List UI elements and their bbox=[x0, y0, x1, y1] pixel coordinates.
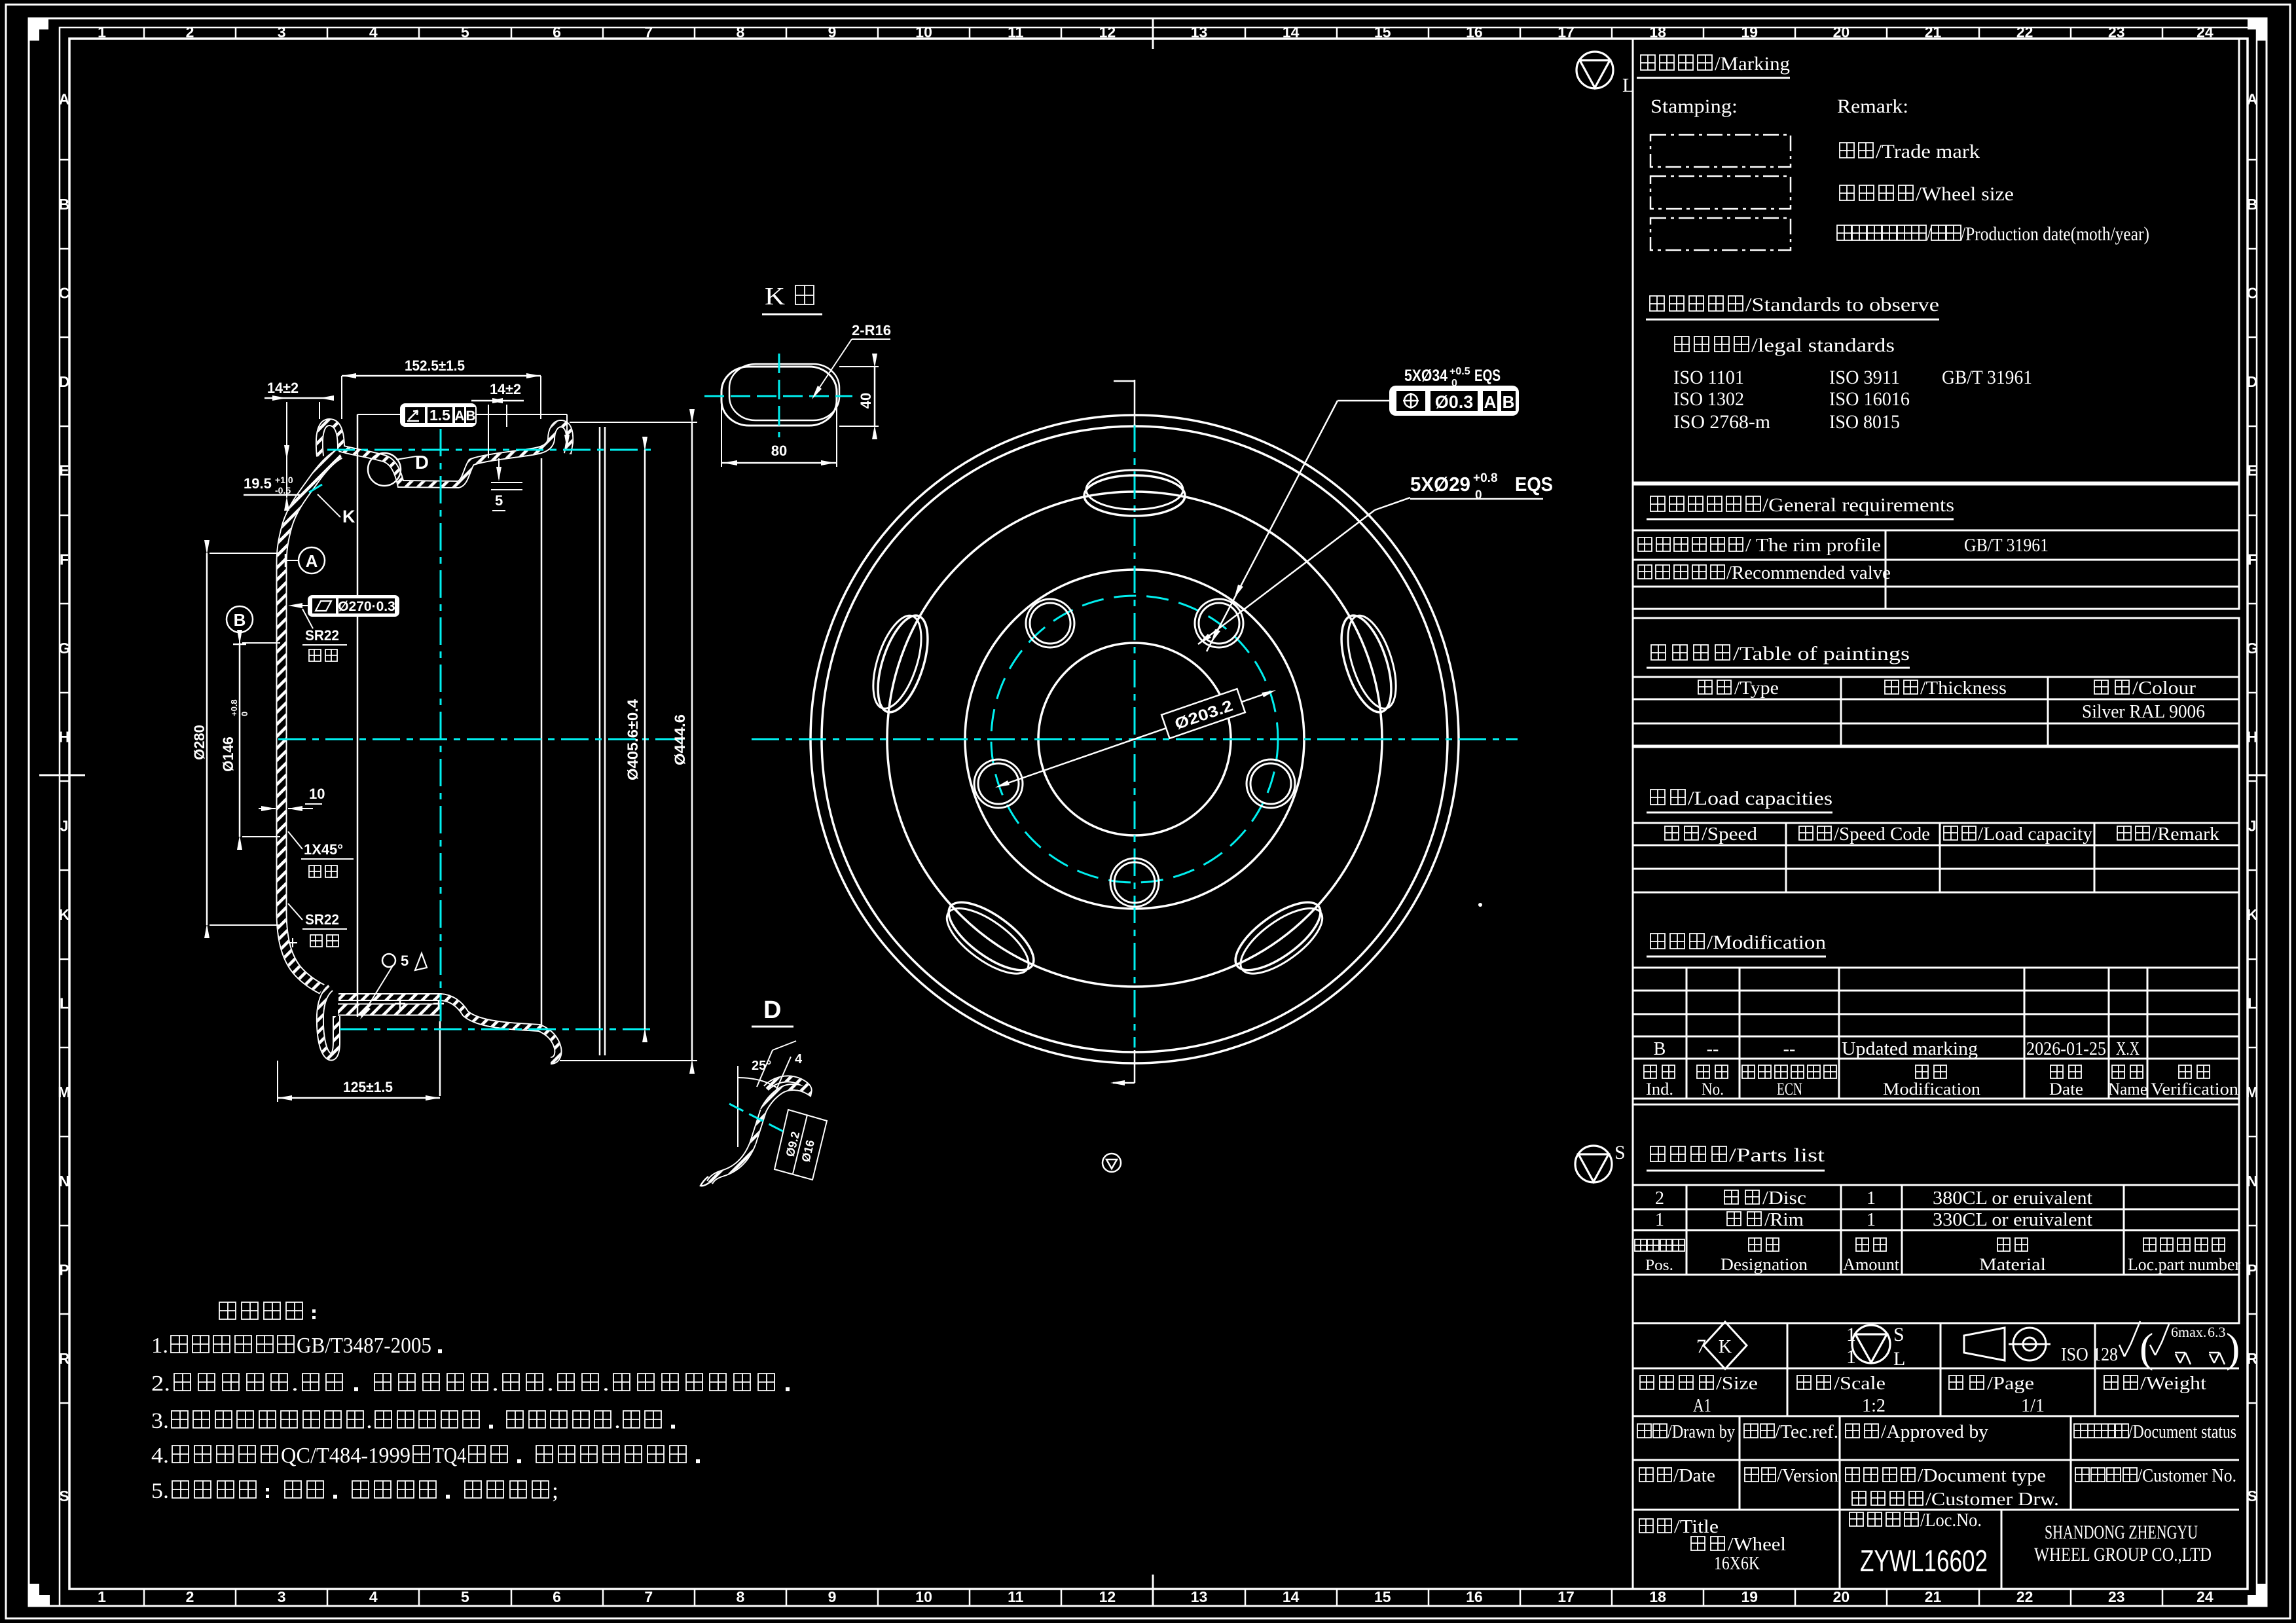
svg-text:L: L bbox=[2248, 995, 2257, 1012]
svg-text:2.: 2. bbox=[151, 1372, 170, 1396]
svg-text:380CL or eruivalent: 380CL or eruivalent bbox=[1933, 1188, 2092, 1209]
svg-text:/Table of paintings: /Table of paintings bbox=[1733, 643, 1910, 665]
svg-text:M: M bbox=[58, 1084, 70, 1101]
svg-text:/Size: /Size bbox=[1716, 1374, 1758, 1394]
svg-text:A: A bbox=[1484, 392, 1497, 412]
svg-text:/Type: /Type bbox=[1734, 678, 1779, 699]
svg-text:ISO 2768-m: ISO 2768-m bbox=[1673, 411, 1770, 433]
svg-text:1: 1 bbox=[1846, 1346, 1856, 1368]
svg-text:15: 15 bbox=[1374, 24, 1391, 41]
svg-text:A1: A1 bbox=[1693, 1396, 1711, 1416]
svg-text:/Disc: /Disc bbox=[1762, 1188, 1806, 1209]
svg-text:A: A bbox=[454, 409, 464, 424]
svg-text:10: 10 bbox=[915, 24, 932, 41]
svg-text:15: 15 bbox=[1374, 1588, 1391, 1605]
svg-text:20: 20 bbox=[1833, 1588, 1850, 1605]
svg-text:2-R16: 2-R16 bbox=[852, 322, 891, 338]
svg-text:ECN: ECN bbox=[1777, 1080, 1802, 1099]
svg-text:Modification: Modification bbox=[1883, 1080, 1980, 1099]
svg-text:11: 11 bbox=[1008, 24, 1024, 41]
svg-text:GB/T3487-2005: GB/T3487-2005 bbox=[297, 1334, 431, 1358]
svg-text:D: D bbox=[2247, 373, 2258, 390]
svg-text:9: 9 bbox=[828, 24, 837, 41]
svg-text:1:2: 1:2 bbox=[1862, 1396, 1886, 1416]
svg-text:.: . bbox=[366, 1409, 373, 1433]
svg-text:22: 22 bbox=[2016, 1588, 2033, 1605]
svg-text:C: C bbox=[2247, 284, 2258, 301]
svg-text:Ø0.3: Ø0.3 bbox=[1435, 392, 1474, 412]
svg-text:Date: Date bbox=[2049, 1080, 2083, 1099]
svg-text:Loc.part number: Loc.part number bbox=[2128, 1255, 2240, 1274]
svg-text:ISO 1302: ISO 1302 bbox=[1673, 388, 1744, 410]
svg-text:G: G bbox=[58, 640, 70, 657]
svg-text:152.5±1.5: 152.5±1.5 bbox=[405, 357, 465, 374]
svg-text:40: 40 bbox=[858, 393, 874, 409]
svg-text:H: H bbox=[2247, 729, 2258, 746]
svg-text:GB/T 31961: GB/T 31961 bbox=[1942, 367, 2032, 388]
svg-text:S: S bbox=[1893, 1324, 1904, 1345]
svg-text:/legal standards: /legal standards bbox=[1751, 335, 1895, 356]
svg-text:24: 24 bbox=[2196, 1588, 2214, 1605]
svg-text:3: 3 bbox=[278, 1588, 286, 1605]
svg-text:Amount: Amount bbox=[1843, 1255, 1900, 1274]
svg-text:.: . bbox=[602, 1372, 610, 1396]
svg-text:/Trade mark: /Trade mark bbox=[1876, 141, 1980, 162]
svg-text:A: A bbox=[306, 551, 318, 571]
svg-text:1/1: 1/1 bbox=[2021, 1396, 2045, 1416]
svg-text:7: 7 bbox=[644, 1588, 653, 1605]
svg-text:/: / bbox=[1927, 223, 1932, 245]
svg-text:2: 2 bbox=[1655, 1188, 1664, 1209]
svg-text:--: -- bbox=[1707, 1039, 1719, 1059]
svg-text:Ind.: Ind. bbox=[1646, 1080, 1673, 1099]
svg-text:+0.5: +0.5 bbox=[1449, 366, 1470, 377]
svg-text:+0.8: +0.8 bbox=[1473, 471, 1498, 485]
svg-text:Ø405.6±0.4: Ø405.6±0.4 bbox=[625, 699, 641, 780]
svg-text:/Title: /Title bbox=[1674, 1517, 1719, 1537]
svg-text:5XØ29: 5XØ29 bbox=[1410, 473, 1470, 496]
svg-text:5: 5 bbox=[461, 24, 469, 41]
svg-text:/Tec.ref.: /Tec.ref. bbox=[1775, 1422, 1838, 1442]
svg-text:/Version: /Version bbox=[1777, 1466, 1838, 1486]
svg-text:J: J bbox=[60, 817, 69, 834]
svg-text:G: G bbox=[2246, 640, 2258, 657]
svg-text:;: ; bbox=[552, 1479, 558, 1503]
svg-text:SR22: SR22 bbox=[305, 911, 339, 928]
svg-text:S: S bbox=[1614, 1142, 1626, 1163]
svg-text:C: C bbox=[59, 284, 70, 301]
svg-text:13: 13 bbox=[1191, 24, 1208, 41]
svg-text:K: K bbox=[59, 906, 70, 923]
svg-text:ZYWL16602: ZYWL16602 bbox=[1860, 1544, 1988, 1578]
svg-text:A: A bbox=[2247, 91, 2258, 108]
svg-text:D: D bbox=[59, 373, 70, 390]
svg-text:B: B bbox=[1503, 392, 1515, 412]
svg-text:/Weight: /Weight bbox=[2140, 1374, 2206, 1394]
svg-text:5: 5 bbox=[495, 492, 503, 509]
svg-text:5.: 5. bbox=[151, 1479, 169, 1503]
svg-text:/Loc.No.: /Loc.No. bbox=[1920, 1510, 1982, 1531]
svg-text:K: K bbox=[765, 283, 786, 310]
svg-text:--: -- bbox=[1783, 1039, 1796, 1059]
svg-text:B: B bbox=[59, 196, 70, 213]
svg-text:-0.5: -0.5 bbox=[275, 485, 291, 496]
svg-text:F: F bbox=[2248, 551, 2257, 568]
svg-text:H: H bbox=[59, 729, 70, 746]
svg-text:M: M bbox=[2246, 1084, 2258, 1101]
svg-text:2: 2 bbox=[186, 1588, 194, 1605]
svg-text:/Modification: /Modification bbox=[1707, 932, 1826, 953]
svg-text:5XØ34: 5XØ34 bbox=[1404, 367, 1448, 385]
svg-text:B: B bbox=[2247, 196, 2258, 213]
svg-text:.: . bbox=[291, 1372, 299, 1396]
svg-text:80: 80 bbox=[771, 443, 787, 459]
svg-text:D: D bbox=[415, 452, 429, 473]
svg-text:K: K bbox=[342, 507, 355, 526]
svg-text:P: P bbox=[2247, 1262, 2257, 1279]
svg-text:12: 12 bbox=[1099, 1588, 1116, 1605]
svg-text:0: 0 bbox=[240, 712, 249, 716]
svg-text:.: . bbox=[492, 1372, 499, 1396]
svg-text:1: 1 bbox=[1655, 1210, 1664, 1230]
svg-text:8: 8 bbox=[736, 1588, 744, 1605]
svg-text:Ø280: Ø280 bbox=[191, 725, 208, 760]
svg-text:EQS: EQS bbox=[1474, 367, 1501, 385]
svg-text:1.5: 1.5 bbox=[429, 407, 450, 424]
svg-text:17: 17 bbox=[1558, 1588, 1575, 1605]
svg-text:GB/T 31961: GB/T 31961 bbox=[1964, 536, 2049, 556]
svg-text:/General requirements: /General requirements bbox=[1762, 494, 1954, 516]
svg-text:+0.8: +0.8 bbox=[229, 699, 239, 716]
svg-text:4: 4 bbox=[795, 1052, 803, 1067]
svg-text:5: 5 bbox=[461, 1588, 469, 1605]
svg-text:Updated marking: Updated marking bbox=[1842, 1039, 1978, 1059]
svg-text:6: 6 bbox=[553, 1588, 561, 1605]
svg-text:3: 3 bbox=[278, 24, 286, 41]
svg-text:L: L bbox=[1893, 1348, 1905, 1370]
svg-text:X.X: X.X bbox=[2116, 1039, 2140, 1059]
svg-text:3.: 3. bbox=[151, 1409, 169, 1433]
svg-text:1: 1 bbox=[1867, 1188, 1876, 1209]
svg-text:N: N bbox=[59, 1173, 70, 1190]
svg-text:14: 14 bbox=[1283, 24, 1300, 41]
svg-text:QC/T484-1999: QC/T484-1999 bbox=[281, 1444, 410, 1468]
svg-text:14: 14 bbox=[1283, 1588, 1300, 1605]
svg-text:Stamping:: Stamping: bbox=[1650, 96, 1738, 117]
svg-text:16: 16 bbox=[1466, 1588, 1483, 1605]
svg-text:1: 1 bbox=[98, 24, 106, 41]
svg-text:/Colour: /Colour bbox=[2132, 678, 2196, 699]
svg-text:19.5: 19.5 bbox=[244, 475, 272, 492]
svg-text:Ø146: Ø146 bbox=[220, 737, 236, 772]
svg-text:K: K bbox=[1719, 1337, 1732, 1357]
svg-text:K: K bbox=[2247, 906, 2258, 923]
svg-text:Ø270·0.3: Ø270·0.3 bbox=[338, 599, 395, 614]
svg-text:EQS: EQS bbox=[1515, 473, 1553, 496]
svg-text:No.: No. bbox=[1702, 1080, 1724, 1099]
svg-text:/ The rim profile: / The rim profile bbox=[1745, 536, 1881, 556]
svg-text:23: 23 bbox=[2108, 1588, 2125, 1605]
svg-text:7: 7 bbox=[644, 24, 653, 41]
svg-text:/Date: /Date bbox=[1673, 1466, 1715, 1486]
svg-text:P: P bbox=[59, 1262, 69, 1279]
svg-text:.: . bbox=[547, 1372, 554, 1396]
svg-text:S: S bbox=[2247, 1487, 2257, 1504]
svg-text:/Document status: /Document status bbox=[2128, 1422, 2236, 1442]
svg-text:SR22: SR22 bbox=[305, 627, 339, 644]
svg-text:L: L bbox=[1622, 75, 1634, 96]
svg-text:1.: 1. bbox=[151, 1334, 168, 1358]
svg-text:6.3: 6.3 bbox=[2208, 1324, 2226, 1340]
svg-text:10: 10 bbox=[915, 1588, 932, 1605]
svg-text:Ø444.6: Ø444.6 bbox=[672, 714, 688, 765]
svg-text:ISO 16016: ISO 16016 bbox=[1829, 388, 1910, 410]
svg-text:Pos.: Pos. bbox=[1645, 1257, 1673, 1274]
svg-text:/Customer No.: /Customer No. bbox=[2138, 1466, 2236, 1486]
svg-text:B: B bbox=[234, 610, 246, 630]
svg-text:4.: 4. bbox=[151, 1444, 169, 1468]
svg-text:19: 19 bbox=[1741, 1588, 1758, 1605]
svg-text:ISO 1101: ISO 1101 bbox=[1673, 367, 1744, 388]
svg-text:4: 4 bbox=[369, 1588, 378, 1605]
svg-text:/Marking: /Marking bbox=[1715, 53, 1790, 75]
svg-text:/Recommended valve: /Recommended valve bbox=[1726, 563, 1891, 583]
svg-text:/Drawn by: /Drawn by bbox=[1667, 1422, 1735, 1442]
svg-text:/Scale: /Scale bbox=[1834, 1374, 1886, 1394]
svg-text:): ) bbox=[2226, 1324, 2240, 1371]
svg-text:F: F bbox=[60, 551, 69, 568]
svg-text:2: 2 bbox=[186, 24, 194, 41]
svg-text:1: 1 bbox=[98, 1588, 106, 1605]
svg-text:N: N bbox=[2247, 1173, 2258, 1190]
svg-text:A: A bbox=[59, 91, 70, 108]
svg-text:/Document type: /Document type bbox=[1918, 1466, 2046, 1486]
svg-text:TQ4: TQ4 bbox=[433, 1444, 466, 1468]
svg-text:16X6K: 16X6K bbox=[1714, 1554, 1760, 1574]
svg-text:ISO 128: ISO 128 bbox=[2061, 1345, 2118, 1365]
svg-text:Silver RAL 9006: Silver RAL 9006 bbox=[2082, 702, 2205, 722]
svg-text:/Speed Code: /Speed Code bbox=[1834, 824, 1930, 845]
svg-text:6: 6 bbox=[553, 24, 561, 41]
svg-text:10: 10 bbox=[309, 786, 325, 802]
svg-text:14±2: 14±2 bbox=[267, 380, 299, 396]
svg-text:/Remark: /Remark bbox=[2152, 824, 2219, 845]
svg-text:/Production date(moth/year): /Production date(moth/year) bbox=[1961, 223, 2149, 245]
svg-text:WHEEL GROUP CO.,LTD: WHEEL GROUP CO.,LTD bbox=[2034, 1544, 2212, 1565]
svg-text:B: B bbox=[465, 409, 475, 424]
svg-text:5: 5 bbox=[401, 953, 409, 969]
svg-text:/Page: /Page bbox=[1987, 1374, 2034, 1394]
svg-text:1: 1 bbox=[1867, 1210, 1876, 1230]
svg-text:/Wheel size: /Wheel size bbox=[1916, 183, 2014, 205]
svg-text:12: 12 bbox=[1099, 24, 1116, 41]
svg-text:Designation: Designation bbox=[1721, 1255, 1808, 1274]
svg-text:/Load capacities: /Load capacities bbox=[1688, 788, 1832, 809]
svg-text:25°: 25° bbox=[752, 1059, 771, 1073]
svg-text:/Load capacity: /Load capacity bbox=[1978, 824, 2092, 845]
svg-text:E: E bbox=[59, 462, 69, 479]
svg-text:11: 11 bbox=[1008, 1588, 1024, 1605]
svg-text:S: S bbox=[59, 1487, 69, 1504]
svg-text:6max.: 6max. bbox=[2171, 1324, 2206, 1340]
svg-text:SHANDONG ZHENGYU: SHANDONG ZHENGYU bbox=[2045, 1522, 2198, 1543]
svg-text:Name: Name bbox=[2108, 1080, 2147, 1099]
svg-text:16: 16 bbox=[1466, 24, 1483, 41]
svg-text:/Speed: /Speed bbox=[1702, 824, 1757, 845]
svg-text:J: J bbox=[2248, 817, 2257, 834]
svg-text:L: L bbox=[60, 995, 69, 1012]
svg-text:/Approved by: /Approved by bbox=[1881, 1422, 1988, 1442]
svg-text:125±1.5: 125±1.5 bbox=[343, 1079, 393, 1095]
svg-text:330CL or eruivalent: 330CL or eruivalent bbox=[1933, 1210, 2092, 1230]
svg-text:/Wheel: /Wheel bbox=[1728, 1535, 1786, 1555]
svg-text:B: B bbox=[1654, 1039, 1666, 1059]
svg-text:D: D bbox=[763, 996, 781, 1024]
svg-text:18: 18 bbox=[1649, 1588, 1666, 1605]
svg-text:.: . bbox=[614, 1409, 621, 1433]
svg-text:0: 0 bbox=[1475, 488, 1482, 502]
svg-text:ISO 8015: ISO 8015 bbox=[1829, 411, 1900, 433]
svg-text:9: 9 bbox=[828, 1588, 837, 1605]
svg-text:8: 8 bbox=[736, 24, 744, 41]
svg-text:R: R bbox=[2247, 1350, 2258, 1367]
svg-text:R: R bbox=[59, 1350, 70, 1367]
svg-text:4: 4 bbox=[369, 24, 378, 41]
svg-text:21: 21 bbox=[1925, 1588, 1942, 1605]
svg-text:2026-01-25: 2026-01-25 bbox=[2026, 1039, 2106, 1059]
svg-text:Remark:: Remark: bbox=[1837, 96, 1908, 117]
svg-text:/Standards to observe: /Standards to observe bbox=[1745, 294, 1939, 316]
svg-text:Verification: Verification bbox=[2151, 1080, 2238, 1099]
svg-text:Material: Material bbox=[1979, 1255, 2046, 1274]
svg-text:/Thickness: /Thickness bbox=[1920, 678, 2007, 699]
svg-text:/Rim: /Rim bbox=[1764, 1210, 1804, 1230]
svg-text:+1.0: +1.0 bbox=[275, 475, 293, 485]
svg-text:17: 17 bbox=[1558, 24, 1575, 41]
svg-text:ISO 3911: ISO 3911 bbox=[1829, 367, 1900, 388]
svg-text:/Parts list: /Parts list bbox=[1729, 1144, 1825, 1166]
svg-text:/Customer Drw.: /Customer Drw. bbox=[1925, 1489, 2059, 1510]
svg-text:14±2: 14±2 bbox=[490, 381, 521, 397]
svg-text:13: 13 bbox=[1191, 1588, 1208, 1605]
svg-text:1X45°: 1X45° bbox=[304, 841, 343, 858]
svg-text:E: E bbox=[2247, 462, 2257, 479]
